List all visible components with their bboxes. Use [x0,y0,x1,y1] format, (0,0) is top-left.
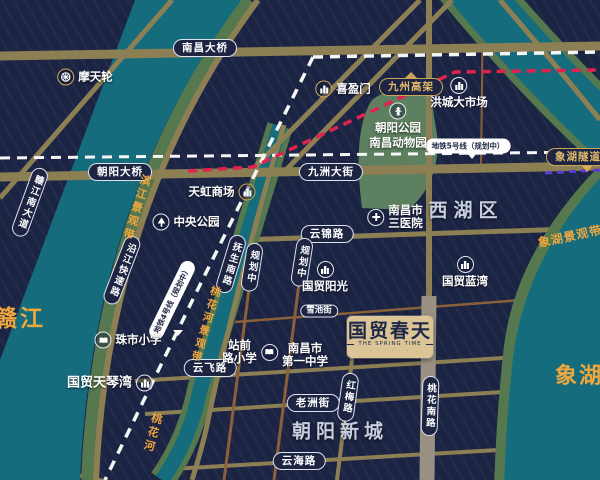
project-logo: 国贸春天 THE SPRING TIME · · · · · · [347,316,433,358]
metro-line5-pointer-icon [467,153,477,159]
viaduct-roof-icon [404,72,418,79]
school-book-icon [261,344,278,361]
poi-label-line2: 第一中学 [282,355,328,368]
road-label-laozhou: 老洲街 [287,394,340,412]
poi-guomao-sunshine: 国贸阳光 [302,261,348,293]
hospital-cross-icon [367,209,384,226]
road-label-taohua-south: 桃花南路 [420,376,439,437]
pagoda-icon [390,103,407,120]
poi-label: 国贸天琴湾 [67,377,132,390]
poi-label: 天虹商场 [189,186,235,199]
poi-zhushi-primary: 珠市小学 [95,332,162,349]
poi-label: 国贸阳光 [302,280,348,293]
building-icon [317,261,334,278]
road-label-jiuzhou-avenue: 九洲大街 [299,163,363,181]
poi-label: 喜盈门 [336,83,371,96]
road-label-xuechi: 雪池街 [300,305,338,318]
poi-zhanqian-primary: 站前 路小学 [222,339,278,365]
metro-line4-pointer-icon [173,330,183,336]
poi-guomao-tianqinwan: 国贸天琴湾 [67,375,153,392]
district-label-xihu: 西湖区 [428,196,503,223]
poi-xiyingmen: 喜盈门 [315,81,371,98]
poi-label: 国贸蓝湾 [442,275,488,288]
ferris-wheel-icon [57,69,74,86]
tunnel-pointer-icon [582,166,592,172]
road-label-xianghu-tunnel: 象湖隧道 [546,148,600,166]
poi-chaoyang-park: 朝阳公园 南昌动物园 [369,103,427,150]
building-icon [457,256,474,273]
poi-central-park: 中央公园 [153,214,220,231]
poi-guomao-bluebay: 国贸蓝湾 [442,256,488,288]
poi-label: 摩天轮 [78,71,113,84]
poi-label-line2: 三医院 [388,217,423,230]
road-label-nanchang-bridge: 南昌大桥 [173,39,237,57]
poi-ferris-wheel: 摩天轮 [57,69,113,86]
building-icon [239,184,256,201]
poi-label: 中央公园 [174,216,220,229]
poi-tianhong-mall: 天虹商场 [189,184,256,201]
poi-label-line2: 路小学 [222,352,257,365]
building-icon [315,81,332,98]
water-label-xiang-lake: 象湖 [555,358,600,390]
poi-label: 洪城大市场 [430,96,488,109]
poi-label-line2: 南昌动物园 [369,137,427,150]
poi-nanchang-no1-middle: 南昌市 第一中学 [282,342,328,368]
school-book-icon [95,332,112,349]
poi-hongcheng-market: 洪城大市场 [430,77,488,109]
district-label-chaoyang-newtown: 朝阳新城 [292,417,388,444]
project-name: 国贸春天 [347,321,433,341]
poi-label: 珠市小学 [116,334,162,347]
metro-line5-callout: 地铁5号线（规划中） [426,139,511,154]
building-icon [451,77,468,94]
poi-third-hospital: 南昌市 三医院 [367,204,423,230]
poi-label-line1: 朝阳公园 [375,122,421,135]
project-tagline: · · · · · · [347,348,433,354]
location-map: 南昌大桥 朝阳大桥 九洲大街 九州高架 云锦路 雪池街 云飞路 老洲街 云海路 … [0,0,600,480]
tree-icon [153,214,170,231]
water-label-gan-river: 赣江 [0,299,46,333]
building-icon [136,375,153,392]
road-label-yunhai: 云海路 [273,452,326,470]
project-name-en-text: THE SPRING TIME [358,341,421,348]
project-name-en: THE SPRING TIME [347,341,433,348]
